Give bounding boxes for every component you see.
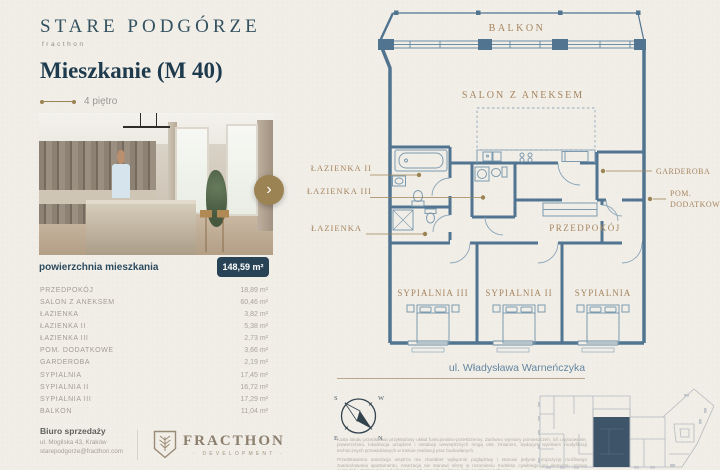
room-name: SYPIALNIA II <box>40 384 89 391</box>
total-area-badge: 148,59 m² <box>217 257 269 277</box>
room-area: 5,38 m² <box>244 323 268 330</box>
table-row: SYPIALNIA III17,29 m² <box>40 393 268 405</box>
plan-label-pom-1: POM. <box>670 189 691 198</box>
photo-kitchen-island <box>86 200 196 255</box>
room-area: 60,46 m² <box>240 299 268 306</box>
table-row: ŁAZIENKA II5,38 m² <box>40 320 268 332</box>
street-label: ul. Władysława Warneńczyka <box>449 362 585 374</box>
footer-divider <box>137 430 138 460</box>
photo-stool <box>200 210 212 253</box>
room-area: 17,45 m² <box>240 372 268 379</box>
compass-s: S <box>334 395 338 402</box>
floor-decoration-dot <box>72 100 76 104</box>
room-area: 16,72 m² <box>240 384 268 391</box>
room-area: 3,82 m² <box>244 311 268 318</box>
room-area: 11,04 m² <box>241 408 268 415</box>
page-title: Mieszkanie (M 40) <box>40 58 223 84</box>
table-row: SALON Z ANEKSEM60,46 m² <box>40 296 268 308</box>
photo-window-right <box>226 124 258 216</box>
plan-door-openings <box>447 178 642 246</box>
gallery-next-button[interactable]: › <box>254 175 284 205</box>
room-name: SALON Z ANEKSEM <box>40 299 115 306</box>
developer-name: FRACTHON <box>183 433 285 450</box>
room-name: ŁAZIENKA II <box>40 323 86 330</box>
table-row: POM. DODATKOWE3,66 m² <box>40 345 268 357</box>
plan-label-lazienka: ŁAZIENKA <box>311 223 362 233</box>
room-name: ŁAZIENKA III <box>40 335 88 342</box>
plan-label-balkon: BALKON <box>489 23 546 34</box>
floor-plan: BALKON SALON Z ANEKSEM ŁAZIENKA II ŁAZIE… <box>300 0 720 380</box>
floor-decoration-line <box>44 101 72 102</box>
plan-label-garderoba: GARDEROBA <box>656 167 710 176</box>
photo-pendant-rod <box>156 113 157 127</box>
plan-glazed-wall <box>378 39 646 50</box>
room-name: POM. DODATKOWE <box>40 347 114 354</box>
table-row: SYPIALNIA17,45 m² <box>40 369 268 381</box>
room-name: GARDEROBA <box>40 359 90 366</box>
room-area: 2,19 m² <box>244 359 268 366</box>
room-area: 2,73 m² <box>244 335 268 342</box>
plan-room-labels: BALKON SALON Z ANEKSEM ŁAZIENKA II ŁAZIE… <box>307 23 720 374</box>
shield-tree-icon <box>153 430 177 459</box>
table-row: ŁAZIENKA3,82 m² <box>40 308 268 320</box>
table-row: PRZEDPOKÓJ18,89 m² <box>40 284 268 296</box>
room-name: BALKON <box>40 408 72 415</box>
apartment-photo-wrap: › <box>39 113 273 255</box>
brand-logo-subtext: fracthon <box>42 41 261 48</box>
floor-indicator: 4 piętro <box>40 96 117 107</box>
chevron-right-icon: › <box>266 181 271 198</box>
room-name: ŁAZIENKA <box>40 311 79 318</box>
compass-rose: S W E N <box>331 389 387 443</box>
plan-label-przedpokoj: PRZEDPOKÓJ <box>549 223 621 233</box>
brand-logo-text: STARE PODGÓRZE <box>40 16 261 38</box>
sales-office-email[interactable]: starepodgorze@fracthon.com <box>40 448 123 455</box>
apartment-card-page: STARE PODGÓRZE fracthon Mieszkanie (M 40… <box>0 0 720 470</box>
room-name: SYPIALNIA <box>40 372 82 379</box>
photo-person-shirt <box>112 164 131 198</box>
plan-label-lazienka3: ŁAZIENKA III <box>307 186 372 196</box>
room-area: 18,89 m² <box>240 287 268 294</box>
total-area-label: powierzchnia mieszkania <box>39 262 159 273</box>
apartment-photo <box>39 113 273 255</box>
plan-label-lazienka2: ŁAZIENKA II <box>311 163 372 173</box>
photo-pendant-light <box>123 126 170 128</box>
compass-w: W <box>378 395 385 402</box>
highlighted-unit <box>594 417 630 467</box>
building-key-plan <box>534 384 717 470</box>
photo-pendant-rod <box>140 113 141 127</box>
table-row: GARDEROBA2,19 m² <box>40 357 268 369</box>
room-name: PRZEDPOKÓJ <box>40 287 93 294</box>
footer-rule <box>337 378 585 379</box>
floor-label: 4 piętro <box>84 96 117 107</box>
plan-interior-walls <box>390 147 644 343</box>
plan-door-arcs <box>432 163 642 263</box>
developer-logo: FRACTHON DEVELOPMENT <box>153 430 285 459</box>
table-row: SYPIALNIA II16,72 m² <box>40 381 268 393</box>
plan-label-pom-2: DODATKOWE <box>670 200 720 209</box>
plan-label-sypialnia3: SYPIALNIA III <box>397 288 468 298</box>
room-area: 3,66 m² <box>244 347 268 354</box>
table-row: BALKON11,04 m² <box>40 405 268 417</box>
developer-logo-text: FRACTHON DEVELOPMENT <box>183 433 285 457</box>
brand-logo: STARE PODGÓRZE fracthon <box>40 16 261 48</box>
photo-person-head <box>117 150 124 164</box>
plan-label-sypialnia2: SYPIALNIA II <box>485 288 552 298</box>
room-name: SYPIALNIA III <box>40 396 91 403</box>
sales-office-address: ul. Mogilska 43, Kraków <box>40 439 107 446</box>
plan-label-sypialnia: SYPIALNIA <box>575 288 632 298</box>
plan-label-salon: SALON Z ANEKSEM <box>462 90 584 101</box>
sales-office-title: Biuro sprzedaży <box>40 426 106 436</box>
photo-stool <box>217 210 229 253</box>
room-area: 17,29 m² <box>240 396 268 403</box>
rooms-table: PRZEDPOKÓJ18,89 m² SALON Z ANEKSEM60,46 … <box>40 284 268 418</box>
table-row: ŁAZIENKA III2,73 m² <box>40 333 268 345</box>
developer-subtitle: DEVELOPMENT <box>183 451 285 457</box>
